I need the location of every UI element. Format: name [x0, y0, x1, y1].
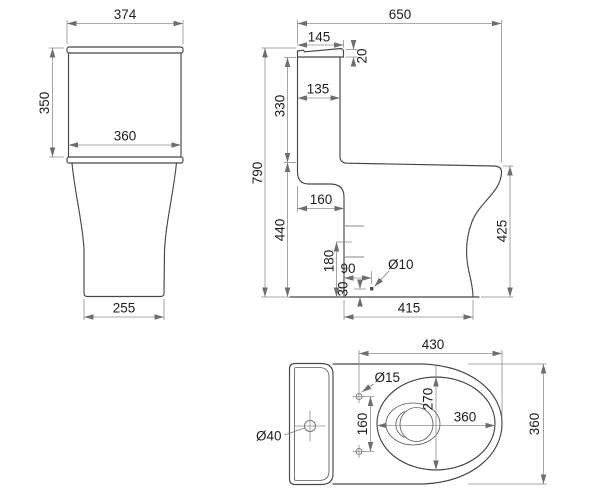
top-seat-hole-diameter-label: Ø15 — [375, 370, 401, 385]
top-tank-hole — [295, 411, 326, 442]
front-base-width-label: 255 — [113, 301, 136, 316]
side-rear-recess-label: 160 — [310, 192, 333, 207]
front-tank-bottom-band — [67, 157, 183, 163]
side-dim-lid-thickness: 20 — [346, 42, 370, 65]
front-tank-width-label: 360 — [114, 129, 137, 144]
side-lid-outline — [298, 49, 344, 58]
side-dim-bowl-section-height: 440 — [273, 163, 288, 298]
front-lid-width-label: 374 — [114, 7, 137, 22]
top-seat-hole-spacing-label: 160 — [355, 413, 370, 436]
fixing-hole-dot — [370, 287, 373, 290]
side-dim-lid-depth: 145 — [298, 30, 344, 48]
side-tank-section-height-label: 330 — [273, 95, 288, 118]
front-dim-base-width: 255 — [84, 299, 164, 320]
side-total-depth-label: 650 — [389, 7, 412, 22]
side-bowl-section-height-label: 440 — [273, 219, 288, 242]
top-view: 430 Ø15 270 360 160 360 Ø40 — [256, 337, 547, 485]
side-dim-tank-depth: 135 — [298, 82, 341, 99]
side-hole-diameter-label: Ø10 — [388, 257, 414, 272]
top-inner-length-label: 360 — [454, 410, 477, 425]
side-tank-depth-label: 135 — [307, 82, 330, 97]
front-tank-height-label: 350 — [37, 92, 52, 115]
front-dim-tank-height: 350 — [37, 48, 64, 157]
tank-hole-crosshair — [295, 411, 326, 442]
front-dim-tank-width: 360 — [69, 129, 182, 146]
side-lid-thickness-label: 20 — [355, 48, 370, 63]
side-dim-hole-offset: 90 — [340, 261, 371, 284]
side-dim-base-depth: 415 — [344, 300, 473, 320]
side-hole-offset-label: 90 — [340, 261, 355, 276]
side-rim-height-label: 425 — [495, 220, 510, 243]
side-bowl-profile-outline — [340, 58, 502, 298]
top-bowl-length-label: 430 — [422, 337, 445, 352]
side-base-depth-label: 415 — [398, 301, 421, 316]
front-view: 374 350 360 255 — [37, 7, 183, 320]
side-lid-depth-label: 145 — [308, 30, 331, 45]
side-dim-tank-section-height: 330 — [273, 58, 297, 163]
side-dim-rear-recess: 160 — [298, 186, 345, 212]
side-hole-height-label: 30 — [336, 281, 351, 296]
top-callout-tank-hole-diameter: Ø40 — [256, 428, 305, 444]
top-dim-seat-hole-spacing: 160 — [355, 397, 375, 452]
side-total-height-label: 790 — [250, 162, 265, 185]
front-lid-outline — [67, 47, 183, 53]
toilet-dimension-drawing: 374 350 360 255 650 — [0, 0, 600, 500]
top-sump-outline — [400, 408, 433, 442]
top-tank-outer-outline — [290, 364, 334, 485]
outlet-lines — [345, 226, 364, 257]
side-callout-hole-diameter: Ø10 — [375, 257, 414, 287]
side-view: 650 145 20 135 330 790 440 — [250, 7, 514, 320]
top-tank-hole-diameter-label: Ø40 — [256, 429, 282, 444]
top-overall-width-label: 360 — [527, 413, 542, 436]
side-outlet-height-label: 180 — [322, 250, 337, 273]
top-callout-seat-hole-diameter: Ø15 — [362, 370, 400, 392]
side-dim-total-height: 790 — [250, 48, 296, 297]
technical-drawing-page: 374 350 360 255 650 — [0, 0, 600, 500]
front-pedestal-outline — [72, 163, 177, 297]
top-inner-width-label: 270 — [421, 388, 436, 411]
side-dim-hole-height: 30 — [336, 281, 367, 304]
front-dim-lid-width: 374 — [67, 7, 183, 44]
top-tank-inner-outline — [295, 368, 330, 481]
top-dim-inner-width: 270 — [421, 366, 437, 470]
